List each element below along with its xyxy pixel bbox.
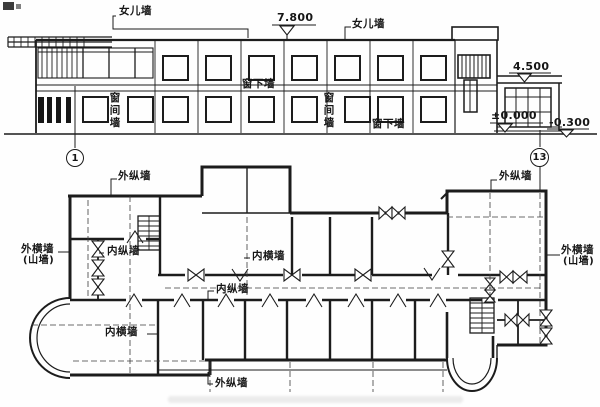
label-pier-right: 窗间墙 [323, 92, 334, 130]
windows-upper [163, 56, 446, 80]
elevation-drawing [4, 16, 597, 191]
label-ext-transverse-left-sub: (山墙) [23, 256, 54, 267]
label-parapet-right: 女儿墙 [352, 19, 385, 30]
label-level-porch-roof: 4.500 [513, 61, 549, 73]
label-int-longitudinal-mid: 内纵墙 [216, 284, 249, 295]
axis-centerlines [32, 193, 544, 392]
narrow-window-strips [38, 97, 71, 123]
label-pier-left: 窗间墙 [109, 92, 120, 130]
label-level-grade: -0.300 [549, 117, 590, 129]
scan-speck [3, 2, 14, 10]
label-level-zero: ±0.000 [491, 110, 537, 122]
plan-exterior-walls [68, 167, 546, 375]
canopy-slab [8, 37, 112, 47]
corridor-walls [70, 275, 546, 300]
axis-bubble-13: 13 [530, 148, 549, 167]
ribbon-window [38, 48, 153, 78]
axis-bubble-1: 1 [66, 149, 84, 167]
label-ext-transverse-left: 外横墙 [21, 244, 54, 255]
label-level-roof: 7.800 [277, 12, 313, 24]
bay-curve-bottom-right [447, 312, 497, 391]
label-int-transverse-bottom-left: 内横墙 [105, 327, 138, 338]
label-ext-transverse-right-sub: (山墙) [563, 257, 594, 268]
axis-number-left: 1 [72, 153, 79, 164]
label-ext-transverse-right: 外横墙 [561, 245, 594, 256]
level-marker-roof-icon [272, 25, 316, 40]
label-int-longitudinal-left: 内纵墙 [107, 246, 140, 257]
label-ext-longitudinal-top-right: 外纵墙 [499, 171, 532, 182]
scan-speck [16, 4, 21, 9]
bay-window-curve-left [30, 298, 70, 378]
label-spandrel-mid: 窗下墙 [242, 79, 275, 90]
label-ext-longitudinal-bottom: 外纵墙 [215, 378, 248, 389]
stair-icon-left-wing [138, 216, 160, 250]
faded-caption-smudge [168, 396, 463, 403]
plan-drawing [30, 167, 560, 392]
architectural-drawing-sheet: 女儿墙 7.800 女儿墙 4.500 窗下墙 窗间墙 窗间墙 窗下墙 ±0.0… [0, 0, 600, 407]
stair-icon-right-wing [470, 298, 494, 333]
label-ext-longitudinal-top-left: 外纵墙 [118, 171, 151, 182]
plan-label-leaders [58, 179, 560, 384]
label-int-transverse-mid: 内横墙 [252, 251, 285, 262]
interior-partitions [70, 167, 546, 375]
level-marker-grade-icon [547, 129, 589, 137]
level-marker-porch-icon [509, 73, 551, 82]
label-parapet-left: 女儿墙 [119, 6, 152, 17]
axis-number-right: 13 [533, 152, 547, 163]
label-spandrel-base: 窗下墙 [372, 119, 405, 130]
drawing-linework [0, 0, 600, 407]
